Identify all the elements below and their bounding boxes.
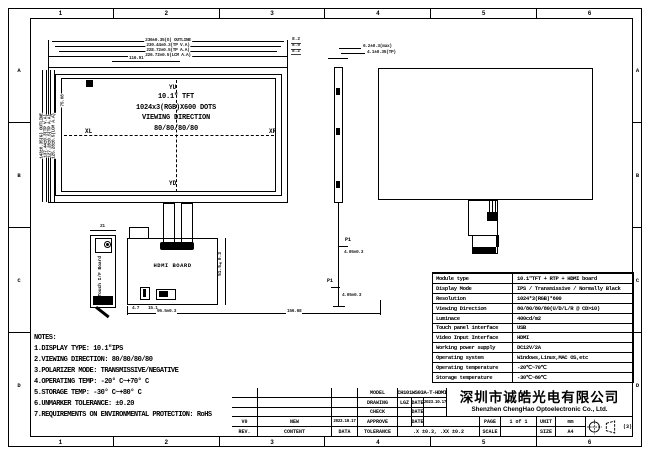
leader-line bbox=[341, 53, 365, 54]
rev-cell bbox=[258, 398, 332, 408]
pin-dimension: 4.05±0.3 bbox=[341, 293, 362, 298]
size-value: A4 bbox=[556, 427, 586, 437]
spec-row: Operating system Windows,Linux,MAC OS,et… bbox=[433, 352, 633, 362]
spec-row: Display Mode IPS / Transmissive / Normal… bbox=[433, 283, 633, 293]
zone-number: 5 bbox=[431, 437, 537, 447]
note-item: 6.UNMARKER TOLERANCE: ±0.20 bbox=[34, 399, 212, 410]
spec-label: Resolution bbox=[433, 294, 513, 303]
side-view-fpc-tail bbox=[338, 203, 339, 306]
side-pin bbox=[496, 235, 499, 247]
extension-line bbox=[380, 300, 381, 315]
grid-letters-left: ABCD bbox=[8, 18, 30, 437]
company-name-cn: 深圳市诚皓光电有限公司 bbox=[460, 391, 620, 406]
third-angle-projection-icon bbox=[586, 418, 623, 436]
spec-value: 10.1"TFT + RTP + HDMI board bbox=[513, 275, 633, 282]
date-label: DATE bbox=[412, 417, 424, 427]
zone-number: 5 bbox=[431, 8, 537, 18]
spec-value: IPS / Transmissive / Normally Black bbox=[513, 285, 633, 292]
touch-board-label: Touch I/F Board bbox=[98, 256, 103, 297]
spec-row: Module type 10.1"TFT + RTP + HDMI board bbox=[433, 273, 633, 283]
drawing-date: 2023.10.17 bbox=[424, 398, 447, 408]
dimension: 75.08 bbox=[61, 93, 66, 107]
spec-label: Storage temperature bbox=[433, 373, 513, 382]
dimension-line bbox=[225, 238, 226, 305]
dimension-board-width: 95.5±0.3 bbox=[156, 309, 177, 314]
spec-label: Touch panel interface bbox=[433, 324, 513, 333]
note-item: 5.STORAGE TEMP: -30° C~+80° C bbox=[34, 388, 212, 399]
zone-letter: A bbox=[8, 18, 30, 123]
edge-connector bbox=[473, 247, 496, 253]
spec-row: Touch panel interface USB bbox=[433, 323, 633, 333]
rev-header-rev: REV. bbox=[232, 427, 258, 437]
dimension: 21 bbox=[99, 224, 106, 229]
touch-connector-pin bbox=[143, 289, 146, 297]
rev-cell bbox=[232, 398, 258, 408]
zone-number: 2 bbox=[114, 437, 220, 447]
approve-label: APPROVE bbox=[358, 417, 398, 427]
rev-cell bbox=[258, 408, 332, 417]
active-area-corner-mark bbox=[86, 80, 93, 87]
note-item: 1.DISPLAY TYPE: 10.1"IPS bbox=[34, 344, 212, 355]
rev-id: V0 bbox=[232, 417, 258, 427]
spec-value: 80/80/80/80(U/D/L/R @ CD>10) bbox=[513, 305, 633, 312]
drawing-value: LGZ bbox=[398, 398, 412, 408]
engineering-drawing-sheet: 123456 123456 ABCD ABCD YU YD XL XR 10.1… bbox=[0, 0, 650, 455]
dimension: 226.72±0.5(LCM A.A) bbox=[48, 53, 288, 58]
grid-numbers-top: 123456 bbox=[8, 8, 642, 18]
zone-letter: C bbox=[633, 228, 642, 333]
zone-number: 6 bbox=[537, 8, 642, 18]
dimension-thickness-max: 6.2±0.3(max) bbox=[362, 44, 393, 49]
rev-content: NEW bbox=[258, 417, 332, 427]
side-view-pad bbox=[336, 128, 340, 135]
rev-header-content: CONTENT bbox=[258, 427, 332, 437]
pin-label: P1 bbox=[327, 278, 333, 284]
scale-value bbox=[501, 427, 537, 437]
grid-numbers-bottom: 123456 bbox=[8, 437, 642, 447]
tolerance-value: .X ±0.3, .XX ±0.2 bbox=[398, 427, 480, 437]
unit-label: UNIT bbox=[537, 417, 556, 427]
side-view-pad bbox=[336, 88, 340, 95]
zone-number: 1 bbox=[8, 437, 114, 447]
display-spec-line: VIEWING DIRECTION bbox=[96, 113, 256, 124]
extension-line bbox=[287, 40, 288, 67]
dimension: 8.2 bbox=[291, 50, 301, 56]
note-item: 7.REQUIREMENTS ON ENVIRONMENTAL PROTECTI… bbox=[34, 410, 212, 421]
zone-letter: C bbox=[8, 228, 30, 333]
display-spec-line: 10.1" TFT bbox=[96, 92, 256, 103]
note-item: 2.VIEWING DIRECTION: 80/80/80/80 bbox=[34, 355, 212, 366]
rev-cell bbox=[232, 408, 258, 417]
grid-letters-right: ABCD bbox=[633, 18, 642, 437]
zone-letter: D bbox=[8, 333, 30, 437]
spec-label: Operating system bbox=[433, 353, 513, 362]
spec-row: Resolution 1024*3(RGB)*600 bbox=[433, 293, 633, 303]
spec-value: 400cd/m2 bbox=[513, 315, 633, 322]
page-label: PAGE bbox=[480, 417, 501, 427]
spec-label: Working power supply bbox=[433, 343, 513, 352]
rev-cell bbox=[258, 388, 332, 398]
spec-value: -30℃~80℃ bbox=[513, 374, 633, 381]
notes-block: NOTES: 1.DISPLAY TYPE: 10.1"IPS2.VIEWING… bbox=[34, 333, 212, 421]
scale-label: SCALE bbox=[480, 427, 501, 437]
dimension-line bbox=[90, 230, 116, 231]
dimension: 125.28±0.5(LCM A.A) bbox=[52, 70, 56, 202]
fpc-wire bbox=[489, 200, 490, 212]
board-fpc-connector bbox=[160, 242, 194, 250]
spec-row: Operating temperature -20℃~70℃ bbox=[433, 362, 633, 372]
fpc-wire bbox=[495, 200, 496, 212]
notes-list: 1.DISPLAY TYPE: 10.1"IPS2.VIEWING DIRECT… bbox=[34, 344, 212, 421]
right-edge-dimensions: 8.28.58.2 bbox=[291, 38, 301, 55]
check-label: CHECK bbox=[358, 408, 398, 417]
check-value bbox=[398, 408, 412, 417]
spec-label: Operating temperature bbox=[433, 363, 513, 372]
rev-cell bbox=[332, 408, 358, 417]
dimension-thickness-tp: 4.1±0.35(TP) bbox=[366, 50, 397, 55]
note-item: 4.OPERATING TEMP: -20° C~+70° C bbox=[34, 377, 212, 388]
touch-board-connector bbox=[93, 296, 113, 305]
axis-label-xr: XR bbox=[269, 128, 276, 135]
display-spec-text: 10.1" TFT1024x3(RGB)X600 DOTSVIEWING DIR… bbox=[96, 92, 256, 134]
spec-value: Windows,Linux,MAC OS,etc bbox=[513, 354, 633, 361]
spec-row: Video Input Interface HDMI bbox=[433, 332, 633, 342]
leader-line bbox=[339, 48, 361, 49]
dimension-line bbox=[112, 61, 180, 62]
spec-row: Luminace 400cd/m2 bbox=[433, 313, 633, 323]
axis-label-yu: YU bbox=[169, 84, 176, 91]
date-label: DATE bbox=[412, 398, 424, 408]
spec-value: -20℃~70℃ bbox=[513, 364, 633, 371]
unit-value: mm bbox=[556, 417, 586, 427]
zone-number: 3 bbox=[220, 437, 326, 447]
zone-number: 2 bbox=[114, 8, 220, 18]
rev-date: 2023.10.17 bbox=[332, 417, 358, 427]
mounting-hole-center bbox=[106, 243, 109, 246]
axis-label-yd: YD bbox=[169, 180, 176, 187]
pin-label: P1 bbox=[345, 237, 351, 243]
dimension: 4.7 bbox=[131, 306, 140, 311]
top-dimensions: 236±0.35(G) OUTLINE230.44±0.3(TP V.A)228… bbox=[48, 38, 288, 58]
spec-label: Display Mode bbox=[433, 284, 513, 293]
page-value: 1 of 1 bbox=[501, 417, 537, 427]
projection-symbol-cell: (3) bbox=[586, 417, 633, 437]
size-label: SIZE bbox=[537, 427, 556, 437]
center-line-horizontal bbox=[64, 135, 274, 136]
zone-letter: D bbox=[633, 333, 642, 437]
fpc-wire bbox=[492, 200, 493, 212]
leader-line bbox=[339, 246, 348, 247]
display-spec-line: 80/80/80/80 bbox=[96, 124, 256, 135]
notes-title: NOTES: bbox=[34, 333, 212, 344]
dimension-board-height: 51.5±0.3 bbox=[218, 252, 223, 276]
tolerance-label: TOLERANCE bbox=[358, 427, 398, 437]
note-item: 3.POLARIZER MODE: TRANSMISSIVE/NEGATIVE bbox=[34, 366, 212, 377]
left-dimensions: 143±0.35(G) OUTLINE137.44±0.3(TP V.A)127… bbox=[40, 70, 56, 202]
dimension: 116.91 bbox=[128, 56, 144, 61]
side-view-top-tick bbox=[328, 58, 348, 59]
rev-cell bbox=[232, 388, 258, 398]
projection-note: (3) bbox=[623, 424, 632, 430]
blank-cell bbox=[447, 417, 480, 427]
model-value: CH101WS03A-T-HDMI bbox=[398, 388, 447, 398]
rev-cell bbox=[332, 398, 358, 408]
back-view-outline bbox=[378, 68, 593, 200]
spec-row: Storage temperature -30℃~80℃ bbox=[433, 372, 633, 382]
rev-header-date: DATA bbox=[332, 427, 358, 437]
drawing-label: DRAWING bbox=[358, 398, 398, 408]
date-label: DATE bbox=[412, 408, 424, 417]
company-name-en: Shenzhen ChengHao Optoelectronic Co., Lt… bbox=[471, 406, 607, 414]
spec-row: Working power supply DC12V/2A bbox=[433, 342, 633, 352]
spec-label: Module type bbox=[433, 274, 513, 283]
approve-value bbox=[398, 417, 412, 427]
spec-value: DC12V/2A bbox=[513, 344, 633, 351]
side-view-pad bbox=[336, 181, 340, 188]
spec-label: Video Input Interface bbox=[433, 333, 513, 342]
hdmi-connector-tongue bbox=[159, 291, 168, 297]
spec-table: Module type 10.1"TFT + RTP + HDMI board … bbox=[432, 272, 634, 383]
pin-dimension: 4.05±0.3 bbox=[343, 250, 364, 255]
spec-label: Luminace bbox=[433, 314, 513, 323]
spec-label: Viewing Direction bbox=[433, 304, 513, 313]
display-spec-line: 1024x3(RGB)X600 DOTS bbox=[96, 103, 256, 114]
zone-letter: A bbox=[633, 18, 642, 123]
check-date bbox=[424, 408, 447, 417]
leader-line bbox=[331, 287, 340, 288]
zone-number: 6 bbox=[537, 437, 642, 447]
model-label: MODEL bbox=[358, 388, 398, 398]
hdmi-board-label: HDMI BOARD bbox=[127, 262, 218, 269]
dimension-overall: 156.68 bbox=[286, 309, 302, 314]
zone-letter: B bbox=[633, 123, 642, 228]
extension-line bbox=[48, 40, 49, 67]
spec-value: HDMI bbox=[513, 334, 633, 341]
zone-number: 3 bbox=[220, 8, 326, 18]
side-view-bottom-tick bbox=[333, 306, 345, 307]
zone-number: 4 bbox=[325, 437, 431, 447]
rev-cell bbox=[332, 388, 358, 398]
spec-row: Viewing Direction 80/80/80/80(U/D/L/R @ … bbox=[433, 303, 633, 313]
axis-label-xl: XL bbox=[85, 128, 92, 135]
zone-number: 1 bbox=[8, 8, 114, 18]
fpc-connector bbox=[487, 212, 498, 221]
spec-value: 1024*3(RGB)*600 bbox=[513, 295, 633, 302]
extension-line bbox=[127, 306, 128, 315]
company-block: 深圳市诚皓光电有限公司 Shenzhen ChengHao Optoelectr… bbox=[447, 388, 633, 417]
spec-value: USB bbox=[513, 324, 633, 331]
zone-letter: B bbox=[8, 123, 30, 228]
zone-number: 4 bbox=[325, 8, 431, 18]
